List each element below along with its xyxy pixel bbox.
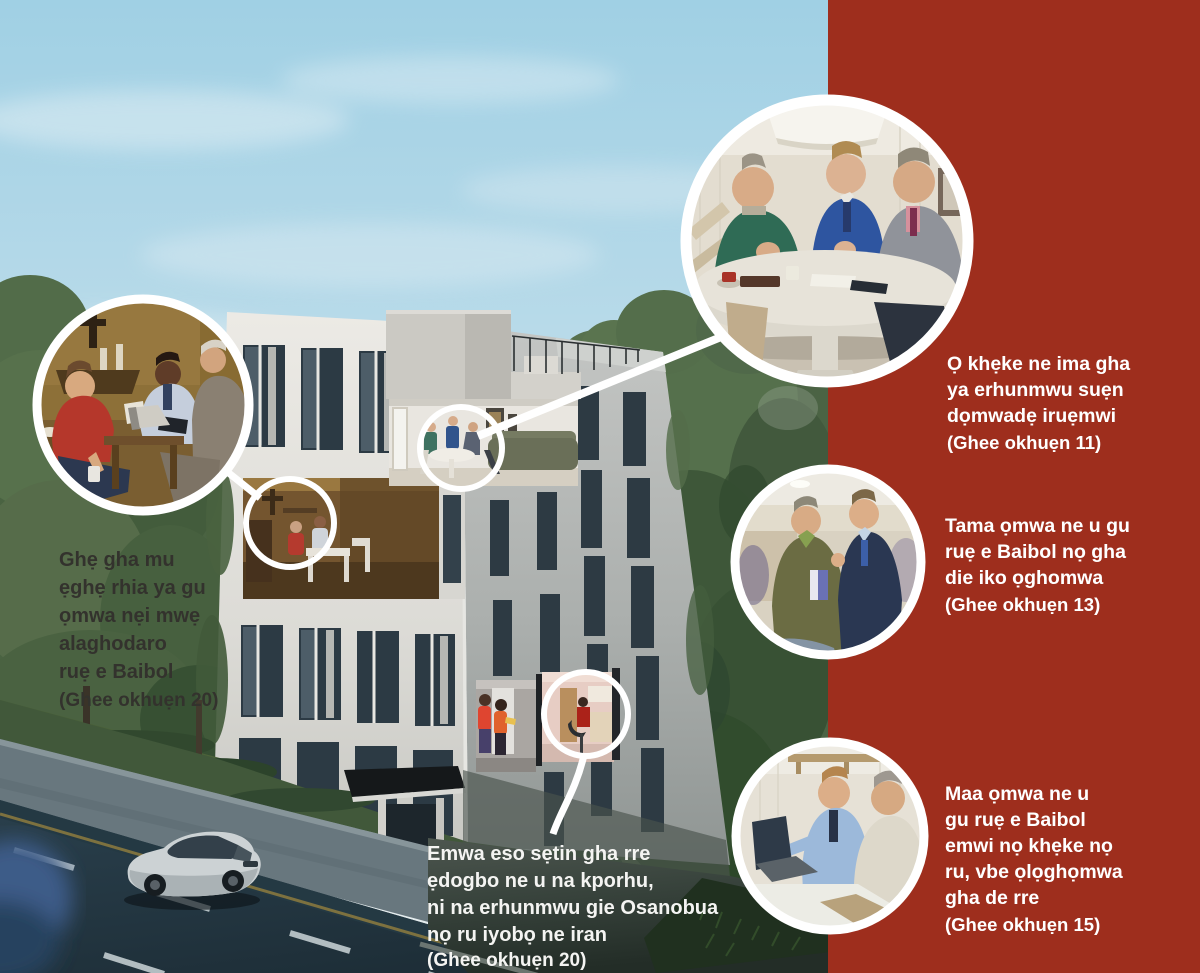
- svg-text:dọmwadẹ iruẹmwi: dọmwadẹ iruẹmwi: [947, 405, 1116, 427]
- svg-text:Tama ọmwa ne u gu: Tama ọmwa ne u gu: [945, 515, 1130, 537]
- svg-text:(Ghee okhuẹn 20): (Ghee okhuẹn 20): [59, 690, 218, 711]
- svg-text:nọ ru iyobọ ne iran: nọ ru iyobọ ne iran: [427, 924, 607, 946]
- svg-text:(Ghee okhuẹn 15): (Ghee okhuẹn 15): [945, 914, 1100, 935]
- svg-text:alaghodaro: alaghodaro: [59, 633, 167, 655]
- svg-text:(Ghee okhuẹn 11): (Ghee okhuẹn 11): [947, 432, 1101, 453]
- svg-text:ẹdogbo ne u na kporhu,: ẹdogbo ne u na kporhu,: [427, 870, 654, 892]
- svg-text:Maa ọmwa ne u: Maa ọmwa ne u: [945, 783, 1089, 805]
- svg-text:ruẹ e Baibol nọ gha: ruẹ e Baibol nọ gha: [945, 541, 1126, 563]
- svg-text:(Ghee okhuẹn 20): (Ghee okhuẹn 20): [427, 950, 586, 971]
- svg-text:Emwa eso sẹtin gha rre: Emwa eso sẹtin gha rre: [427, 843, 650, 865]
- svg-text:gha de rre: gha de rre: [945, 887, 1039, 909]
- svg-text:ruẹ e Baibol: ruẹ e Baibol: [59, 661, 173, 683]
- svg-text:emwi nọ khẹke nọ: emwi nọ khẹke nọ: [945, 835, 1113, 857]
- svg-text:ẹghẹ rhia ya gu: ẹghẹ rhia ya gu: [59, 577, 206, 599]
- svg-text:Ọ khẹke ne ima gha: Ọ khẹke ne ima gha: [947, 353, 1130, 375]
- svg-text:ru, vbe ọlọghọmwa: ru, vbe ọlọghọmwa: [945, 861, 1123, 883]
- svg-text:ọmwa nẹi mwẹ: ọmwa nẹi mwẹ: [59, 605, 200, 627]
- svg-text:ni na erhunmwu gie Osanobua: ni na erhunmwu gie Osanobua: [427, 897, 719, 919]
- svg-text:ya erhunmwu suẹn: ya erhunmwu suẹn: [947, 379, 1124, 401]
- svg-text:die iko ọghomwa: die iko ọghomwa: [945, 567, 1103, 589]
- svg-text:gu ruẹ e Baibol: gu ruẹ e Baibol: [945, 809, 1086, 831]
- svg-text:Ghẹ gha mu: Ghẹ gha mu: [59, 549, 175, 571]
- svg-text:(Ghee okhuẹn 13): (Ghee okhuẹn 13): [945, 594, 1100, 615]
